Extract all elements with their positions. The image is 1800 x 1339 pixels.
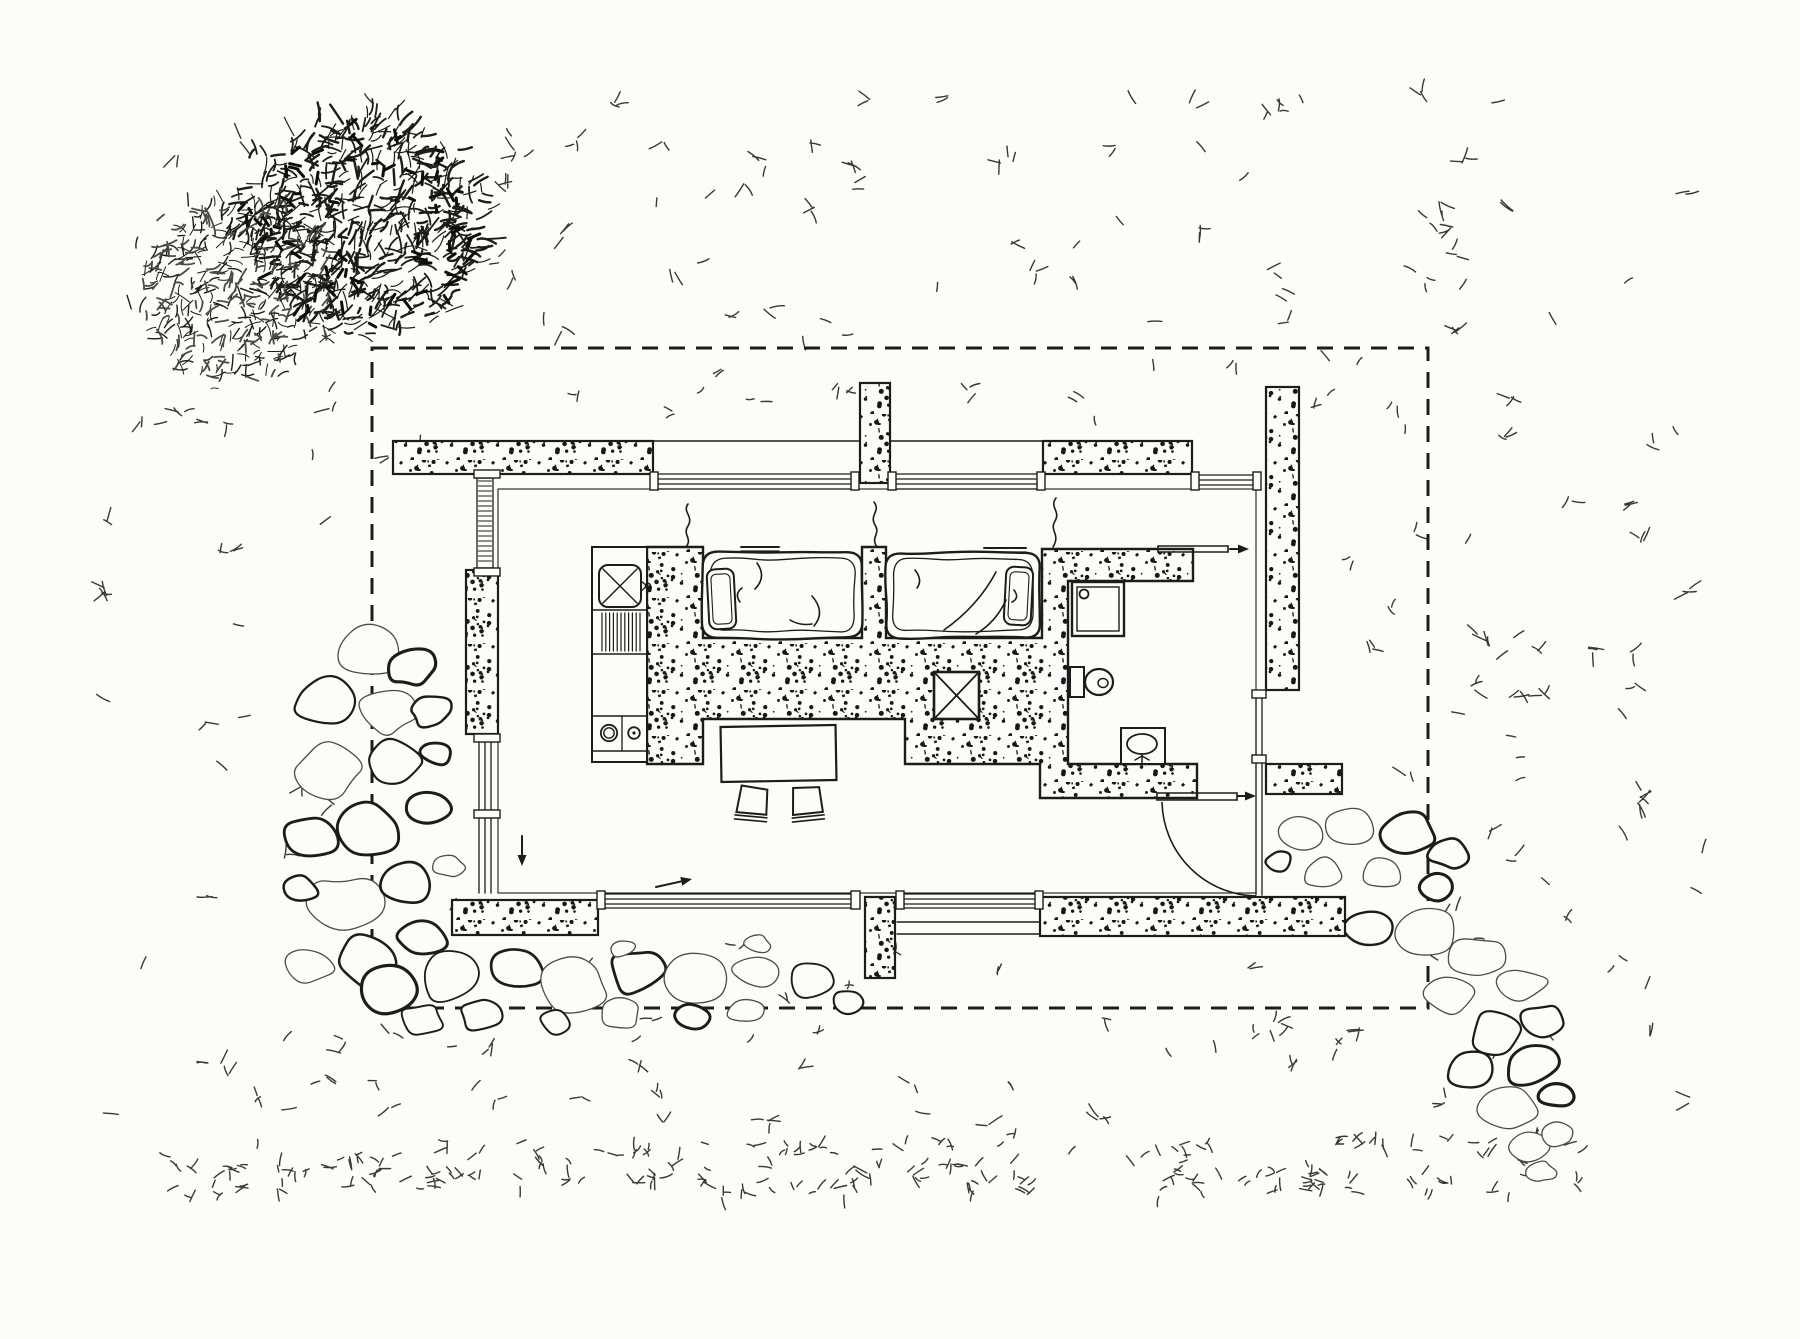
pillow	[706, 568, 736, 629]
floor-plan-svg	[0, 0, 1800, 1339]
pier-bottom	[865, 897, 895, 978]
bed-1	[702, 547, 863, 639]
site-plan-drawing	[0, 0, 1800, 1339]
wall-bottom-left	[452, 900, 598, 935]
window-bottom-a	[604, 894, 852, 908]
wall-right-lower	[1266, 764, 1342, 794]
shower	[1072, 582, 1124, 636]
bathroom-sink	[1121, 728, 1165, 764]
tree-canopy	[127, 99, 506, 389]
flagstone-paving-right	[1266, 808, 1574, 1181]
chimney-flue	[934, 672, 979, 719]
pier-top	[860, 383, 890, 483]
bed-2	[885, 548, 1040, 639]
exterior-walls	[393, 383, 1345, 978]
wall-bottom-right	[1040, 897, 1345, 936]
toilet	[1070, 667, 1113, 697]
wall-top-left	[393, 441, 653, 474]
wall-top-right	[1043, 441, 1192, 474]
wall-left-mid	[466, 570, 498, 734]
window-top-c	[1194, 475, 1256, 485]
window-left-upper	[477, 478, 493, 568]
pillow	[1004, 566, 1034, 625]
window-right-door	[1256, 690, 1262, 895]
window-top-b	[894, 474, 1038, 489]
window-top-a	[655, 474, 852, 489]
wall-right	[1266, 387, 1299, 690]
window-bottom-b	[898, 894, 1036, 908]
kitchen-counter	[592, 547, 651, 762]
